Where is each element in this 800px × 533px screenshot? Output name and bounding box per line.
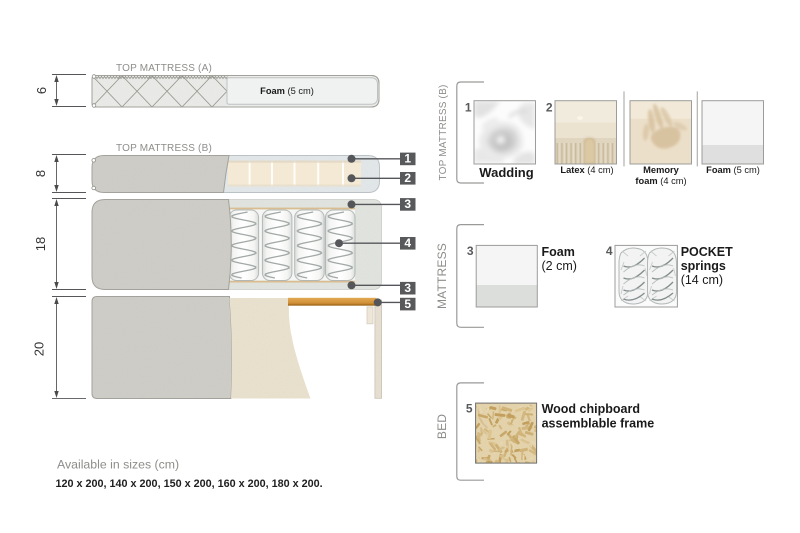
svg-text:Foam: Foam [542,245,575,259]
svg-text:1: 1 [404,152,411,166]
svg-text:(14 cm): (14 cm) [681,273,723,287]
svg-text:8: 8 [33,170,48,177]
svg-text:Wood chipboard: Wood chipboard [542,402,640,416]
svg-text:TOP MATTRESS (A): TOP MATTRESS (A) [116,63,212,74]
svg-text:5: 5 [404,297,411,311]
svg-text:3: 3 [404,281,411,295]
svg-text:Foam (5 cm): Foam (5 cm) [706,165,760,175]
svg-text:foam (4 cm): foam (4 cm) [635,176,686,186]
svg-text:Foam (5 cm): Foam (5 cm) [260,86,314,96]
svg-text:TOP MATTRESS (B): TOP MATTRESS (B) [116,143,212,154]
svg-text:TOP MATTRESS (B): TOP MATTRESS (B) [438,85,449,181]
svg-text:POCKET: POCKET [681,245,733,259]
svg-text:BED: BED [435,414,449,439]
svg-text:Available in sizes (cm): Available in sizes (cm) [57,457,179,471]
svg-text:3: 3 [467,244,474,258]
svg-text:5: 5 [466,401,473,415]
svg-text:120 x 200, 140 x 200, 150 x 20: 120 x 200, 140 x 200, 150 x 200, 160 x 2… [56,478,323,490]
svg-text:MATTRESS: MATTRESS [435,243,449,309]
svg-text:4: 4 [606,244,613,258]
svg-text:18: 18 [33,237,48,251]
svg-text:Wadding: Wadding [479,165,533,180]
svg-text:assemblable frame: assemblable frame [542,416,655,430]
svg-text:3: 3 [404,197,411,211]
svg-text:2: 2 [546,101,553,115]
svg-text:2: 2 [404,171,411,185]
svg-text:1: 1 [465,101,472,115]
svg-text:4: 4 [404,236,411,250]
svg-text:springs: springs [681,259,726,273]
svg-text:Latex (4 cm): Latex (4 cm) [560,165,613,175]
svg-text:6: 6 [34,87,49,94]
svg-text:20: 20 [32,342,47,356]
svg-text:Memory: Memory [643,165,679,175]
svg-text:(2 cm): (2 cm) [542,259,577,273]
